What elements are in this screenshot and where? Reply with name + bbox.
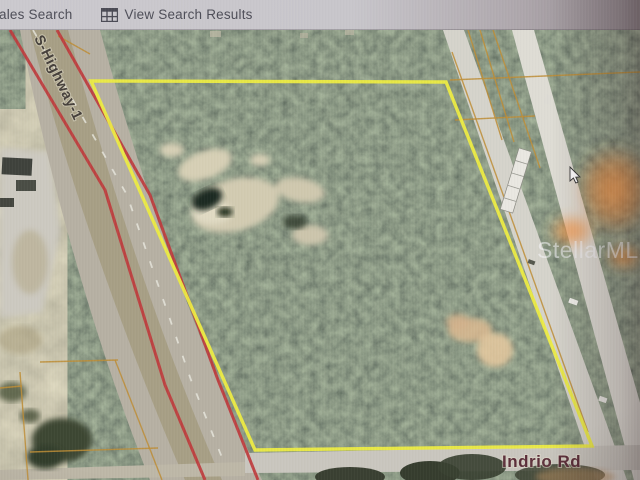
watermark-stellarmls: StellarMLS xyxy=(537,237,640,263)
view-search-results-label: View Search Results xyxy=(125,7,253,22)
view-search-results-button[interactable]: View Search Results xyxy=(101,7,253,22)
map-viewport[interactable]: S-Highway-1 Indrio Rd StellarMLS xyxy=(0,30,640,480)
toolbar: ales Search View Search Results xyxy=(0,0,640,30)
aerial-imagery: S-Highway-1 Indrio Rd StellarMLS xyxy=(0,30,640,480)
sales-search-button[interactable]: ales Search xyxy=(0,7,73,22)
application-window: ales Search View Search Results xyxy=(0,0,640,480)
road-label-indrio-rd: Indrio Rd xyxy=(502,452,581,471)
table-grid-icon xyxy=(101,8,118,22)
